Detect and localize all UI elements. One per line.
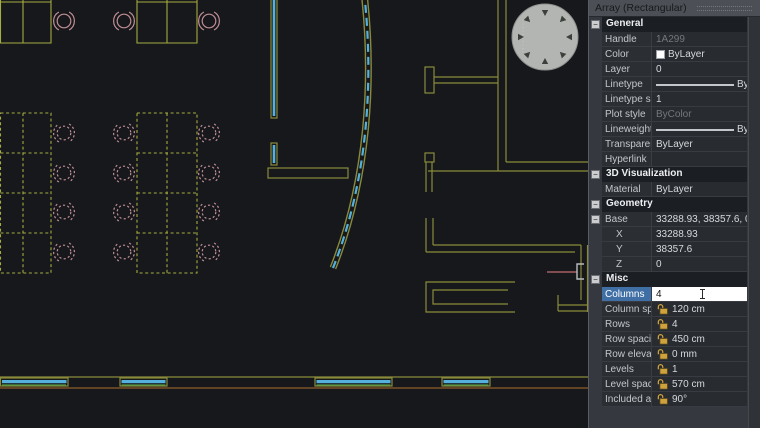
property-label: Levels [602, 362, 652, 377]
property-value[interactable]: ByLayer [652, 77, 747, 92]
property-label: Hyperlink [602, 152, 652, 167]
property-label: Plot style [602, 107, 652, 122]
property-label: Z [602, 257, 652, 272]
linetype-sample-icon [656, 84, 734, 86]
row-gutter [589, 347, 602, 362]
value-text: 4 [672, 319, 678, 330]
value-text: 1A299 [656, 34, 685, 45]
property-value[interactable] [652, 152, 747, 167]
value-text: 0 [656, 64, 662, 75]
app-window: Array (Rectangular) −GeneralHandle1A299C… [0, 0, 760, 428]
property-row-level-spacing[interactable]: Level spacing570 cm [589, 377, 747, 392]
property-value[interactable]: 0 mm [652, 347, 747, 362]
property-value[interactable]: 1 [652, 362, 747, 377]
property-value[interactable]: ByLayer [652, 137, 747, 152]
row-gutter [589, 122, 602, 137]
property-row-material[interactable]: MaterialByLayer [589, 182, 747, 197]
collapse-icon[interactable]: − [591, 275, 600, 284]
section-name: Misc [602, 272, 747, 287]
facade-windows [1, 378, 491, 386]
property-label: Transparency [602, 137, 652, 152]
property-row-x[interactable]: X33288.93 [589, 227, 747, 242]
row-gutter [589, 257, 602, 272]
panel-title-bar[interactable]: Array (Rectangular) [589, 0, 760, 17]
property-label: Row elevation in [602, 347, 652, 362]
row-gutter [589, 152, 602, 167]
property-label: Linetype [602, 77, 652, 92]
unlock-icon [656, 304, 669, 315]
property-value[interactable]: 90° [652, 392, 747, 407]
property-row-levels[interactable]: Levels1 [589, 362, 747, 377]
property-row-row-spacing[interactable]: Row spacing450 cm [589, 332, 747, 347]
value-text: 450 cm [672, 334, 705, 345]
property-label: Color [602, 47, 652, 62]
property-label: Columns [602, 287, 652, 302]
property-label: Handle [602, 32, 652, 47]
color-swatch-icon [656, 50, 665, 59]
row-gutter [589, 32, 602, 47]
row-gutter [589, 182, 602, 197]
row-gutter [589, 362, 602, 377]
row-gutter [589, 107, 602, 122]
value-text: 1 [656, 94, 662, 105]
panel-scroll-gutter[interactable] [748, 17, 760, 428]
value-text: 120 cm [672, 304, 705, 315]
property-label: Column spacing [602, 302, 652, 317]
expand-icon[interactable]: − [591, 215, 600, 224]
property-row-layer[interactable]: Layer0 [589, 62, 747, 77]
property-label: Row spacing [602, 332, 652, 347]
properties-panel: Array (Rectangular) −GeneralHandle1A299C… [588, 0, 760, 428]
value-text: 33288.93, 38357.6, 0 [656, 214, 747, 225]
property-row-column-spacing[interactable]: Column spacing120 cm [589, 302, 747, 317]
property-row-handle[interactable]: Handle1A299 [589, 32, 747, 47]
property-row-z[interactable]: Z0 [589, 257, 747, 272]
property-label: Y [602, 242, 652, 257]
property-label: Layer [602, 62, 652, 77]
section-header-general[interactable]: −General [589, 17, 747, 32]
value-text: 0 mm [672, 349, 697, 360]
property-value[interactable]: 33288.93 [652, 227, 747, 242]
property-row-rows[interactable]: Rows4 [589, 317, 747, 332]
row-gutter [589, 377, 602, 392]
value-text: ByLayer [656, 184, 693, 195]
unlock-icon [656, 394, 669, 405]
property-label: Level spacing [602, 377, 652, 392]
property-label: Base [602, 212, 652, 227]
unlock-icon [656, 334, 669, 345]
value-text: 0 [656, 259, 662, 270]
linetype-sample-icon [656, 129, 734, 131]
property-row-hyperlink[interactable]: Hyperlink [589, 152, 747, 167]
property-value[interactable]: 450 cm [652, 332, 747, 347]
unlock-icon [656, 364, 669, 375]
value-text: 4 [656, 289, 662, 300]
row-gutter: − [589, 212, 602, 227]
value-text: 570 cm [672, 379, 705, 390]
property-row-included-axis-ang[interactable]: Included axis ang90° [589, 392, 747, 407]
wall-fixture [547, 264, 584, 279]
property-row-linetype-scale[interactable]: Linetype scale1 [589, 92, 747, 107]
row-gutter [589, 287, 602, 302]
property-value[interactable]: 1A299 [652, 32, 747, 47]
ibeam-cursor-icon [699, 288, 706, 300]
property-row-lineweight[interactable]: LineweightByLayer [589, 122, 747, 137]
collapse-icon[interactable]: − [591, 200, 600, 209]
collapse-icon[interactable]: − [591, 20, 600, 29]
row-gutter [589, 332, 602, 347]
property-value-input[interactable]: 4 [652, 287, 747, 302]
value-text: ByLayer [668, 49, 705, 60]
section-name: 3D Visualization [602, 167, 747, 182]
property-value[interactable]: 4 [652, 317, 747, 332]
property-row-columns[interactable]: Columns4 [589, 287, 747, 302]
row-gutter [589, 227, 602, 242]
property-value[interactable]: 0 [652, 257, 747, 272]
properties-list: −GeneralHandle1A299ColorByLayerLayer0Lin… [589, 17, 760, 428]
curved-wall [333, 0, 368, 268]
section-name: General [602, 17, 747, 32]
property-label: Included axis ang [602, 392, 652, 407]
round-column [512, 4, 578, 70]
row-gutter [589, 392, 602, 407]
property-row-y[interactable]: Y38357.6 [589, 242, 747, 257]
property-label: Material [602, 182, 652, 197]
property-value[interactable]: 0 [652, 62, 747, 77]
section-header-3d-visualization[interactable]: −3D Visualization [589, 167, 747, 182]
value-text: 1 [672, 364, 678, 375]
property-label: Rows [602, 317, 652, 332]
section-header-geometry[interactable]: −Geometry [589, 197, 747, 212]
property-value[interactable]: ByColor [652, 107, 747, 122]
desks-solid [1, 0, 198, 43]
property-row-linetype[interactable]: LinetypeByLayer [589, 77, 747, 92]
row-gutter [589, 317, 602, 332]
row-gutter [589, 137, 602, 152]
property-value[interactable]: 1 [652, 92, 747, 107]
property-value[interactable]: 120 cm [652, 302, 747, 317]
property-value[interactable]: ByLayer [652, 182, 747, 197]
unlock-icon [656, 319, 669, 330]
property-row-color[interactable]: ColorByLayer [589, 47, 747, 62]
row-gutter [589, 302, 602, 317]
property-row-base[interactable]: −Base33288.93, 38357.6, 0 [589, 212, 747, 227]
property-label: Lineweight [602, 122, 652, 137]
property-row-row-elevation-in[interactable]: Row elevation in0 mm [589, 347, 747, 362]
palette-grip[interactable] [697, 6, 752, 11]
unlock-icon [656, 379, 669, 390]
array-preview-desks [1, 113, 198, 273]
row-gutter [589, 62, 602, 77]
value-text: ByLayer [737, 124, 747, 135]
value-text: ByColor [656, 109, 692, 120]
row-gutter [589, 242, 602, 257]
value-text: ByLayer [737, 79, 747, 90]
property-value[interactable]: ByLayer [652, 47, 747, 62]
collapse-icon[interactable]: − [591, 170, 600, 179]
property-label: Linetype scale [602, 92, 652, 107]
row-gutter [589, 77, 602, 92]
value-text: 33288.93 [656, 229, 698, 240]
property-row-transparency[interactable]: TransparencyByLayer [589, 137, 747, 152]
property-value[interactable]: 570 cm [652, 377, 747, 392]
drawing-canvas[interactable] [0, 0, 588, 428]
panel-title: Array (Rectangular) [595, 2, 687, 14]
property-label: X [602, 227, 652, 242]
value-text: 38357.6 [656, 244, 692, 255]
property-value[interactable]: ByLayer [652, 122, 747, 137]
section-name: Geometry [602, 197, 747, 212]
row-gutter [589, 92, 602, 107]
value-text: ByLayer [656, 139, 693, 150]
walls [0, 0, 588, 377]
section-header-misc[interactable]: −Misc [589, 272, 747, 287]
value-text: 90° [672, 394, 687, 405]
unlock-icon [656, 349, 669, 360]
property-row-plot-style[interactable]: Plot styleByColor [589, 107, 747, 122]
property-value[interactable]: 33288.93, 38357.6, 0 [652, 212, 747, 227]
row-gutter [589, 47, 602, 62]
property-value[interactable]: 38357.6 [652, 242, 747, 257]
